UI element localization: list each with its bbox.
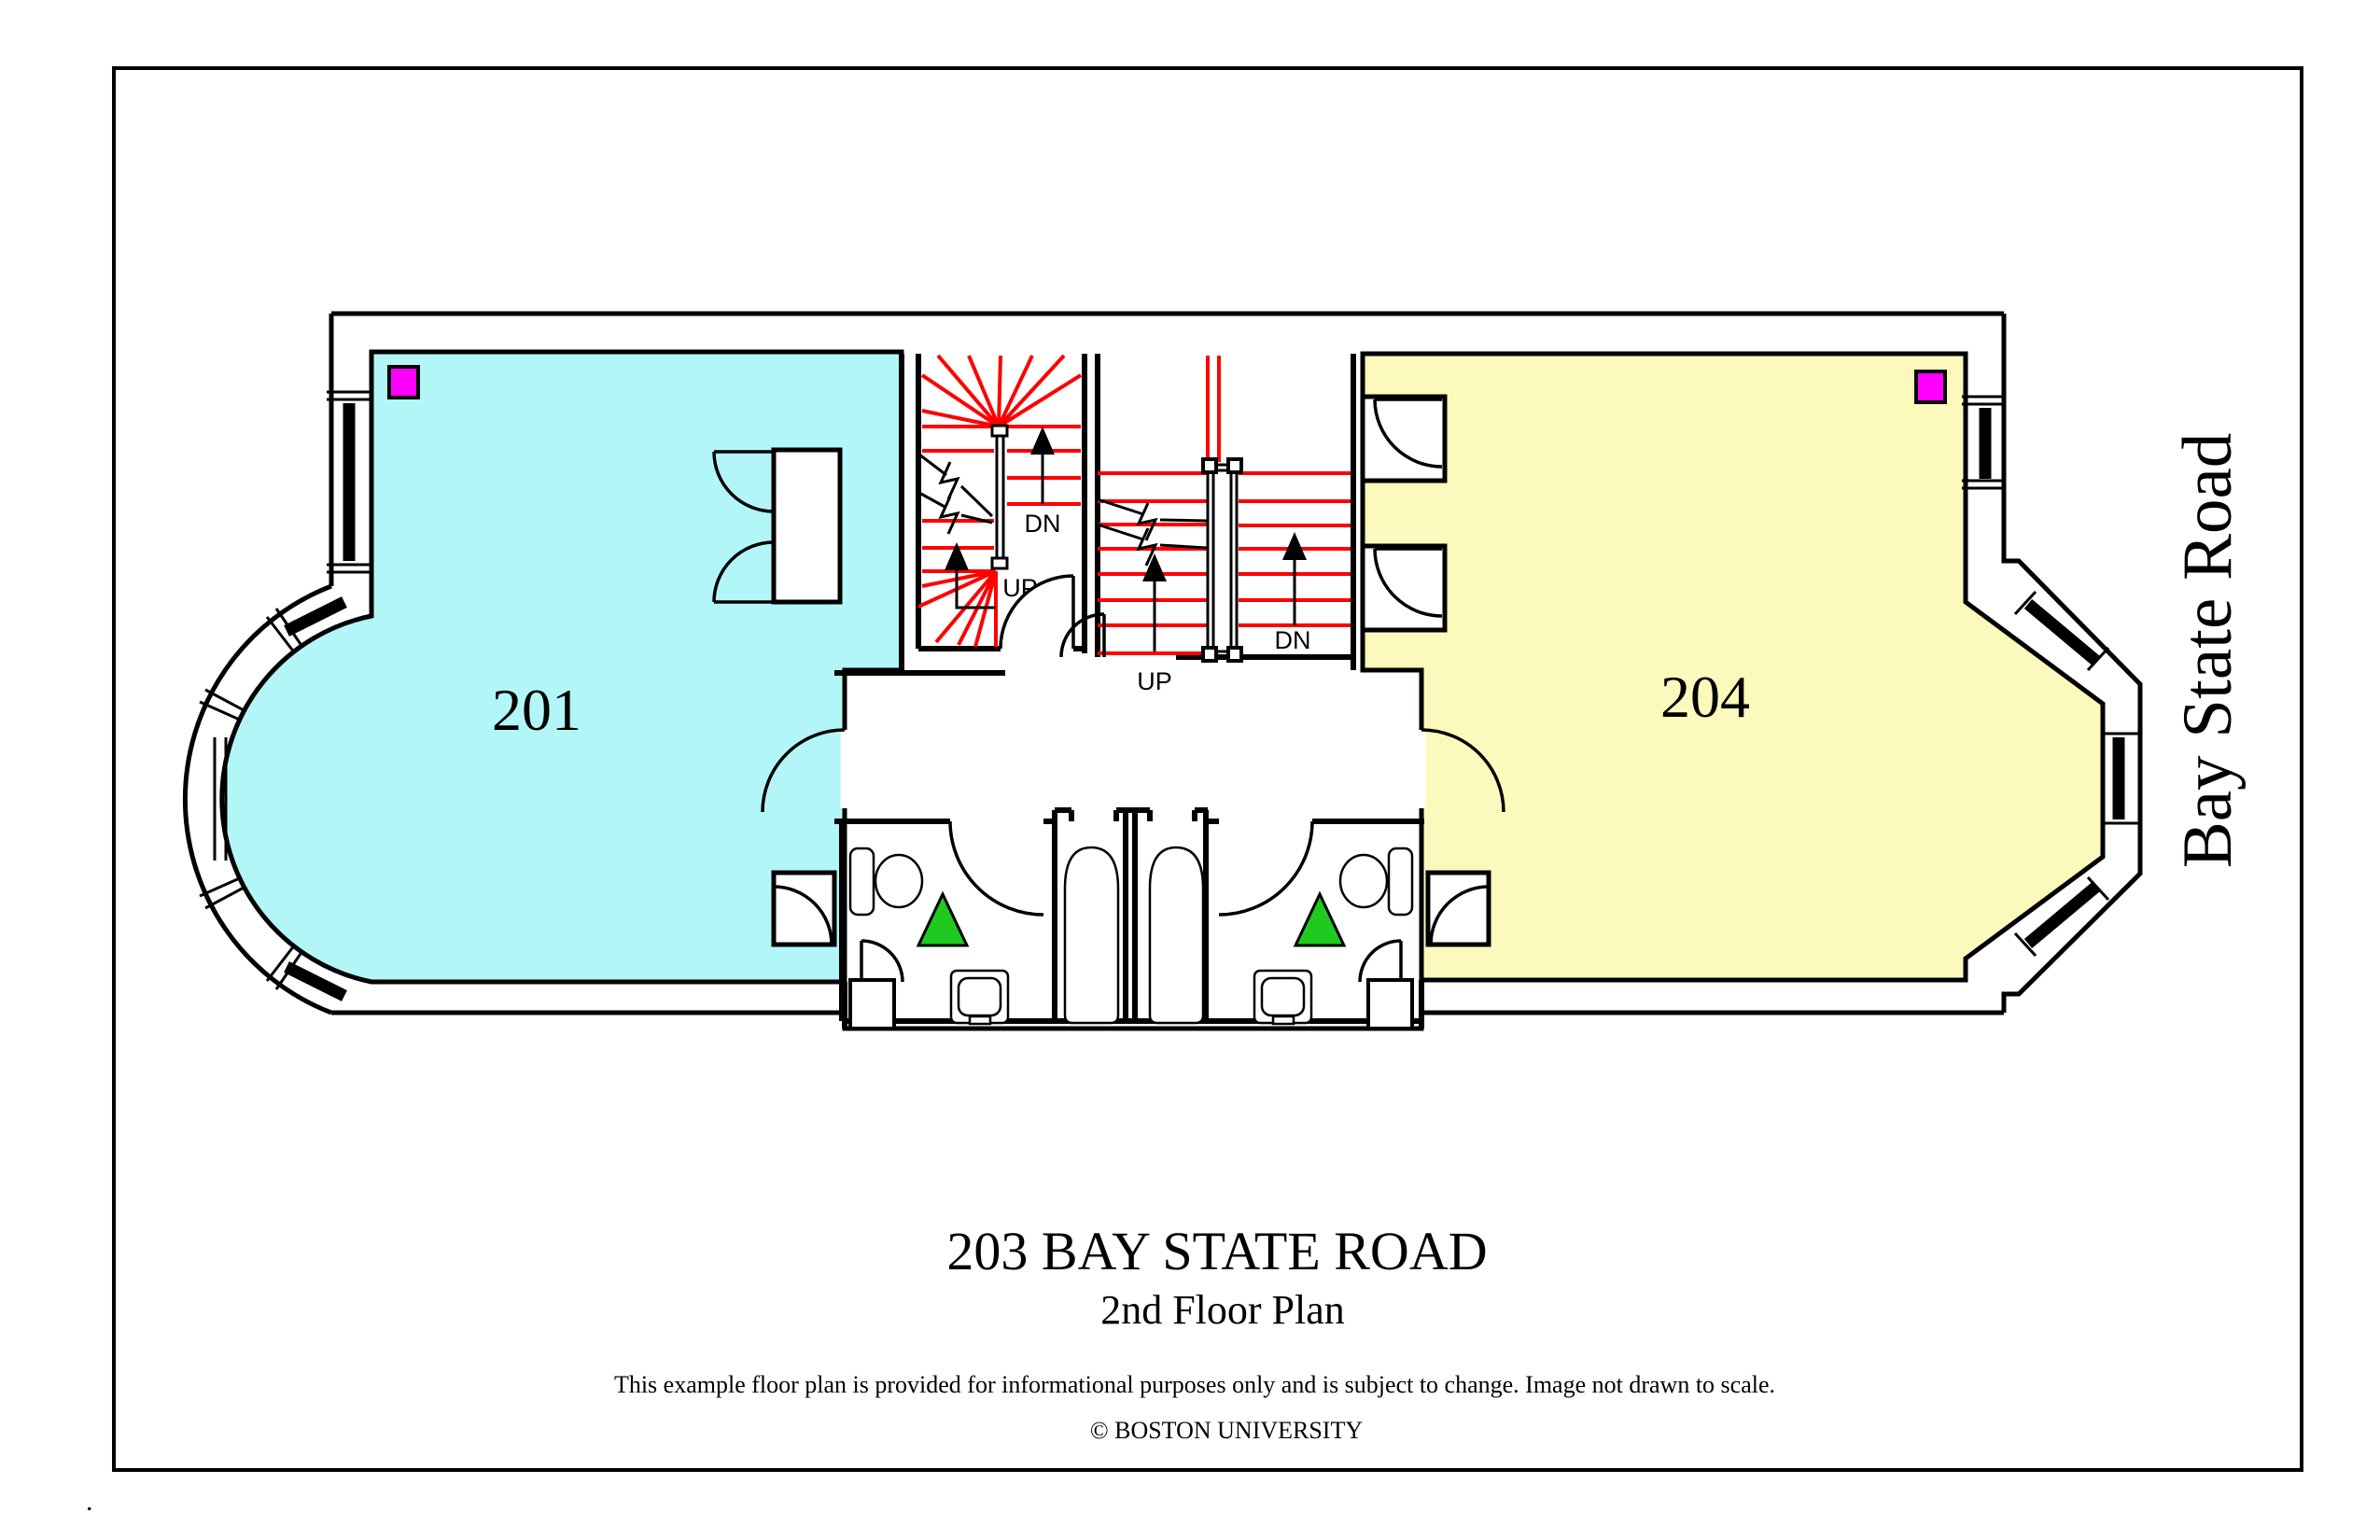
title-block: 203 BAY STATE ROAD 2nd Floor Plan This e… [614,1221,1775,1444]
plan-name-subtitle: 2nd Floor Plan [1100,1287,1345,1333]
stair-a-up-label: UP [1002,574,1038,602]
bathtub-right [1150,847,1203,1023]
green-triangle-marker-icon-right [1295,894,1344,945]
stair-arrows [945,427,1307,651]
copyright-notice: © BOSTON UNIVERSITY [1090,1417,1364,1444]
stray-dot: . [86,1486,93,1517]
stair-b-up-label: UP [1137,667,1172,695]
plan-disclaimer: This example floor plan is provided for … [614,1371,1775,1398]
stoop-right [1368,980,1412,1029]
door-arc-bathroom-left-rear [861,941,903,982]
door-arc-bathroom-right [1219,821,1312,915]
stair-a-dn-label: DN [1025,510,1061,538]
floor-plan-canvas: 201 204 DN UP UP DN Bay State Road 203 B… [0,0,2380,1540]
plan-address-title: 203 BAY STATE ROAD [946,1221,1487,1281]
door-arc-bathroom-right-rear [1360,941,1401,982]
toilet-bowl-right [1340,855,1387,907]
room-204-label: 204 [1660,664,1750,730]
sink-faucet-left [970,1016,990,1024]
toilet-tank-right [1389,848,1412,915]
street-label: Bay State Road [2169,433,2247,869]
door-opening-gaps [845,730,1421,808]
toilet-bowl-left [875,855,922,907]
sink-faucet-right [1273,1016,1294,1024]
stoop-left [850,980,894,1029]
bathtub-left [1065,847,1118,1023]
magenta-square-marker-icon-204 [1916,371,1945,402]
room-201-vestibule [774,450,840,602]
toilet-tank-left [850,848,874,915]
room-201-label: 201 [492,677,581,743]
magenta-square-marker-icon-201 [389,367,418,398]
closet-left [774,873,834,945]
stair-b-dn-label: DN [1275,626,1311,654]
door-arc-bathroom-left [950,821,1043,915]
closet-right [1428,873,1489,945]
sink-basin-left [959,978,1001,1015]
green-triangle-marker-icon-left [918,894,967,945]
sink-basin-right [1262,978,1304,1015]
